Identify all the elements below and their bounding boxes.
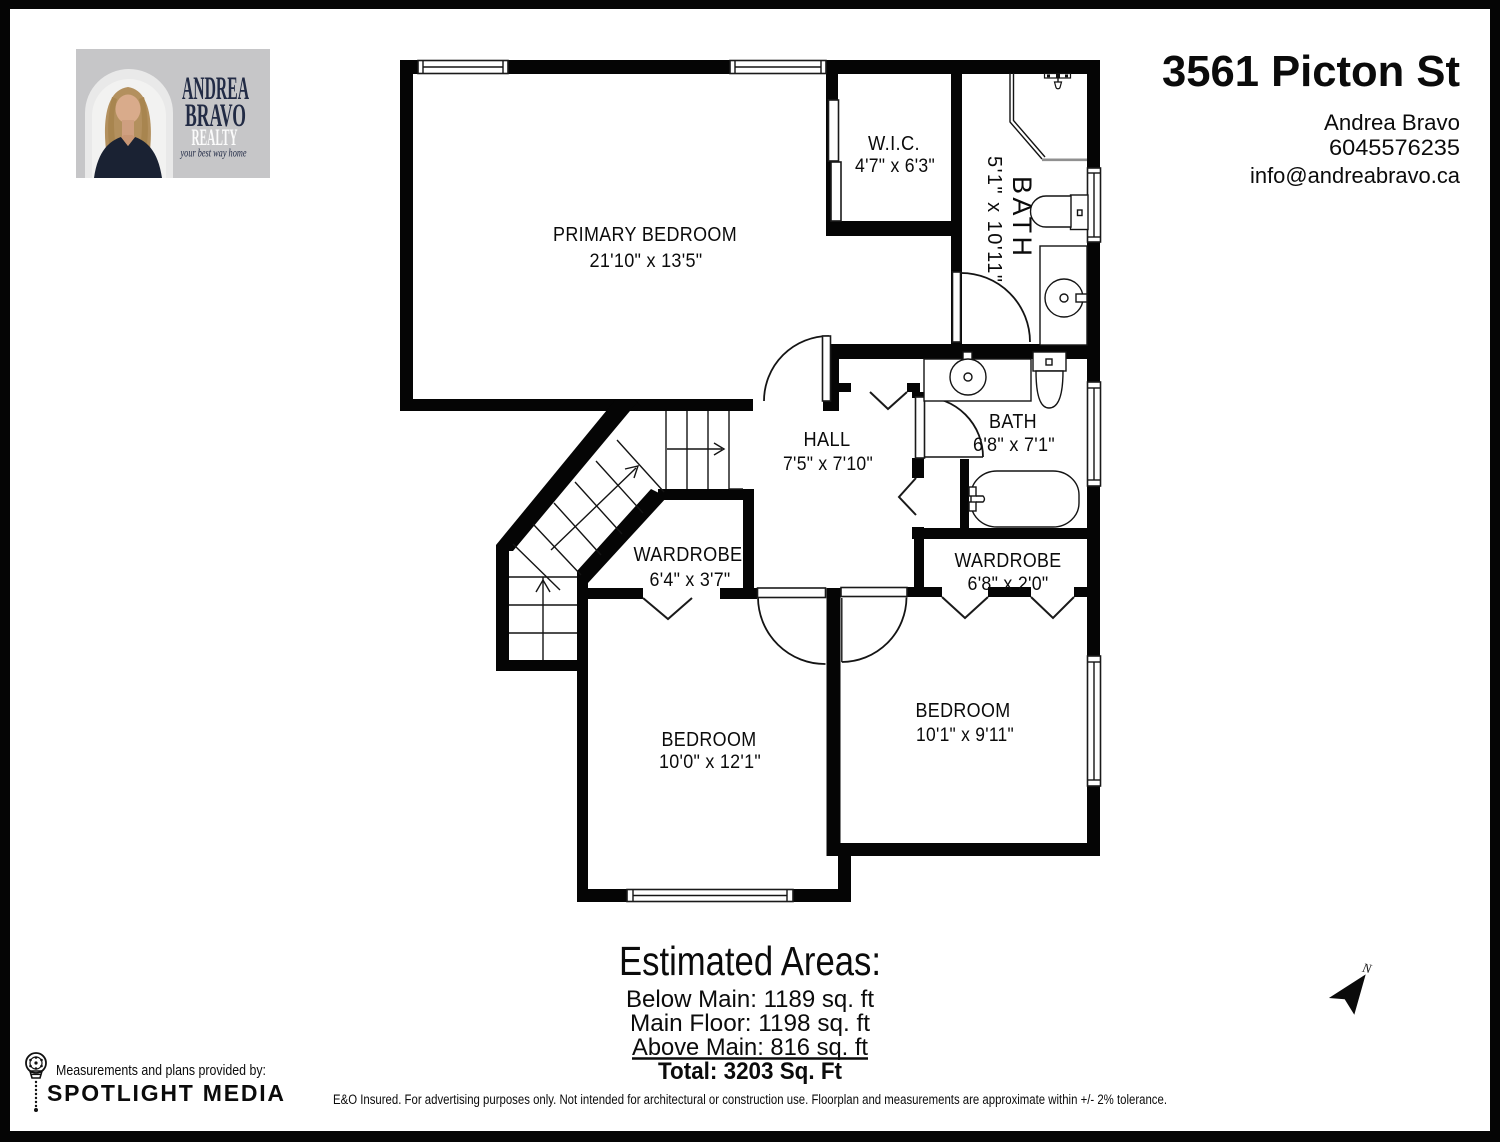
svg-text:PRIMARY BEDROOM: PRIMARY BEDROOM (553, 224, 737, 246)
svg-text:10'0" x 12'1": 10'0" x 12'1" (659, 752, 761, 773)
svg-text:10'1" x 9'11": 10'1" x 9'11" (916, 725, 1014, 746)
svg-text:7'5" x 7'10": 7'5" x 7'10" (783, 454, 873, 475)
svg-text:W.I.C.: W.I.C. (868, 133, 920, 155)
svg-text:BATH: BATH (989, 411, 1037, 433)
svg-text:SPOTLIGHT MEDIA: SPOTLIGHT MEDIA (47, 1080, 284, 1106)
svg-text:info@andreabravo.ca: info@andreabravo.ca (1250, 163, 1461, 188)
svg-text:Andrea Bravo: Andrea Bravo (1324, 110, 1460, 135)
svg-text:your best way home: your best way home (180, 148, 247, 160)
svg-text:6'4" x 3'7": 6'4" x 3'7" (650, 570, 731, 591)
svg-text:6'8" x 7'1": 6'8" x 7'1" (973, 435, 1055, 456)
svg-text:WARDROBE: WARDROBE (955, 550, 1062, 572)
svg-text:Measurements and plans provide: Measurements and plans provided by: (56, 1062, 266, 1079)
svg-text:BEDROOM: BEDROOM (916, 700, 1011, 722)
svg-text:WARDROBE: WARDROBE (634, 544, 743, 566)
svg-text:Main Floor: 1198 sq. ft: Main Floor: 1198 sq. ft (630, 1010, 870, 1037)
svg-text:REALTY: REALTY (192, 125, 238, 150)
svg-text:Total: 3203 Sq. Ft: Total: 3203 Sq. Ft (658, 1058, 842, 1085)
svg-text:6'8" x 2'0": 6'8" x 2'0" (968, 574, 1049, 595)
svg-text:Above Main: 816 sq. ft: Above Main: 816 sq. ft (632, 1034, 868, 1061)
svg-text:6045576235: 6045576235 (1329, 135, 1460, 160)
svg-text:21'10" x 13'5": 21'10" x 13'5" (590, 251, 703, 272)
svg-text:HALL: HALL (804, 429, 851, 451)
svg-text:5'1" x 10'11": 5'1" x 10'11" (983, 156, 1005, 282)
svg-text:Below Main: 1189 sq. ft: Below Main: 1189 sq. ft (626, 986, 874, 1013)
svg-text:E&O Insured. For advertising p: E&O Insured. For advertising purposes on… (333, 1092, 1167, 1107)
svg-text:3561 Picton St: 3561 Picton St (1162, 47, 1460, 96)
svg-text:Estimated Areas:: Estimated Areas: (619, 938, 881, 984)
svg-text:BATH: BATH (1007, 176, 1037, 256)
svg-text:4'7" x 6'3": 4'7" x 6'3" (855, 156, 935, 177)
svg-text:BEDROOM: BEDROOM (662, 729, 757, 751)
